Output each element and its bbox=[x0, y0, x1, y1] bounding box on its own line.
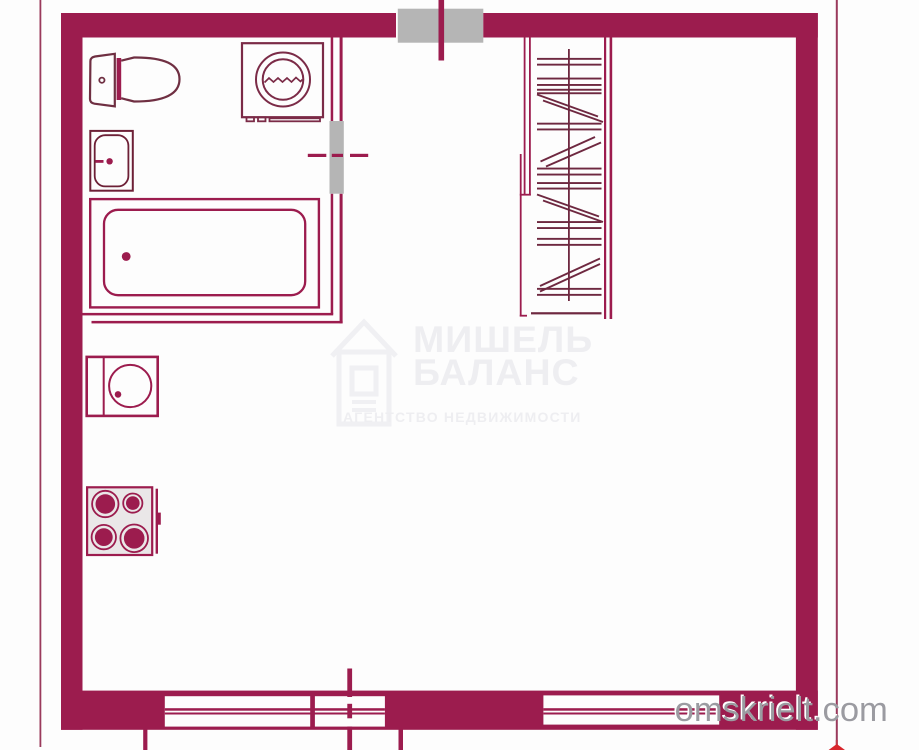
svg-text:АГЕНТСТВО НЕДВИЖИМОСТИ: АГЕНТСТВО НЕДВИЖИМОСТИ bbox=[343, 409, 582, 425]
svg-text:omskrielt.com: omskrielt.com bbox=[675, 691, 888, 729]
svg-text:БАЛАНС: БАЛАНС bbox=[413, 351, 580, 393]
